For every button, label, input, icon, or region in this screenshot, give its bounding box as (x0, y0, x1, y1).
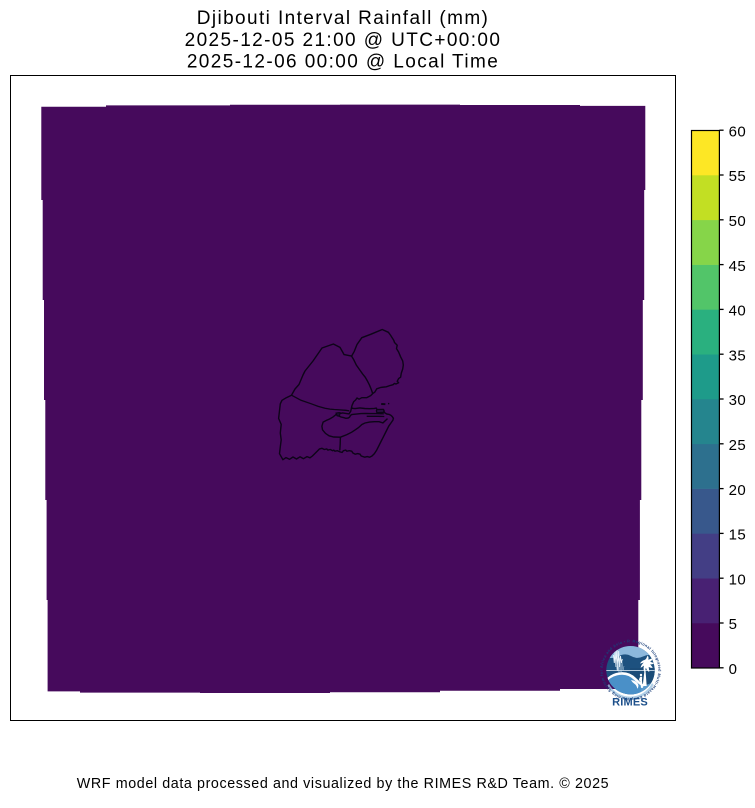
svg-text:60: 60 (729, 123, 747, 140)
svg-text:45: 45 (729, 258, 747, 275)
svg-text:RIMES: RIMES (612, 696, 648, 708)
svg-text:5: 5 (729, 616, 738, 633)
svg-text:40: 40 (729, 303, 747, 320)
svg-text:50: 50 (729, 213, 747, 230)
svg-text:35: 35 (729, 347, 747, 364)
svg-text:20: 20 (729, 482, 747, 499)
svg-text:30: 30 (729, 392, 747, 409)
svg-text:2025-12-05 21:00 @ UTC+00:00: 2025-12-05 21:00 @ UTC+00:00 (185, 30, 502, 51)
svg-text:0: 0 (729, 661, 738, 678)
svg-text:10: 10 (729, 571, 747, 588)
svg-text:Djibouti Interval Rainfall (mm: Djibouti Interval Rainfall (mm) (197, 8, 490, 29)
svg-text:25: 25 (729, 437, 747, 454)
svg-text:55: 55 (729, 168, 747, 185)
svg-text:15: 15 (729, 527, 747, 544)
svg-text:2025-12-06 00:00 @ Local Time: 2025-12-06 00:00 @ Local Time (187, 51, 499, 72)
svg-text:WRF model data processed and v: WRF model data processed and visualized … (77, 776, 609, 792)
